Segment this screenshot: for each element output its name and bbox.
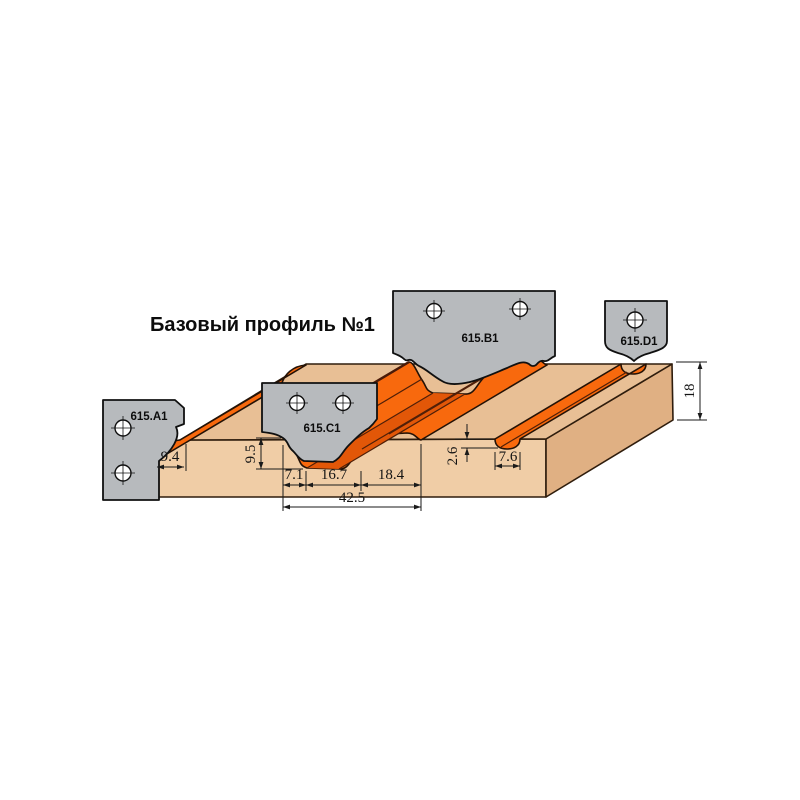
diagram-canvas: 615.A1 615.B1 615.C1 615.D1 (0, 0, 800, 800)
dim-9-5-value: 9.5 (243, 445, 259, 464)
dim-2-6-value: 2.6 (445, 446, 461, 465)
dim-42-5-value: 42.5 (339, 490, 365, 506)
plate-a1-label: 615.A1 (130, 411, 168, 423)
cutter-profile-diagram: 615.A1 615.B1 615.C1 615.D1 (0, 0, 800, 800)
dim-9-4-value: 9.4 (161, 449, 180, 465)
dim-7-1-value: 7.1 (285, 467, 304, 483)
dim-16-7-value: 16.7 (321, 467, 348, 483)
dim-18-value: 18 (682, 384, 698, 399)
plate-b1-label: 615.B1 (461, 333, 499, 345)
dim-18-4-value: 18.4 (378, 467, 405, 483)
diagram-title: Базовый профиль №1 (150, 314, 375, 336)
plate-d1-label: 615.D1 (620, 336, 658, 348)
dim-7-6-value: 7.6 (499, 449, 518, 465)
plate-c1-label: 615.C1 (303, 423, 341, 435)
